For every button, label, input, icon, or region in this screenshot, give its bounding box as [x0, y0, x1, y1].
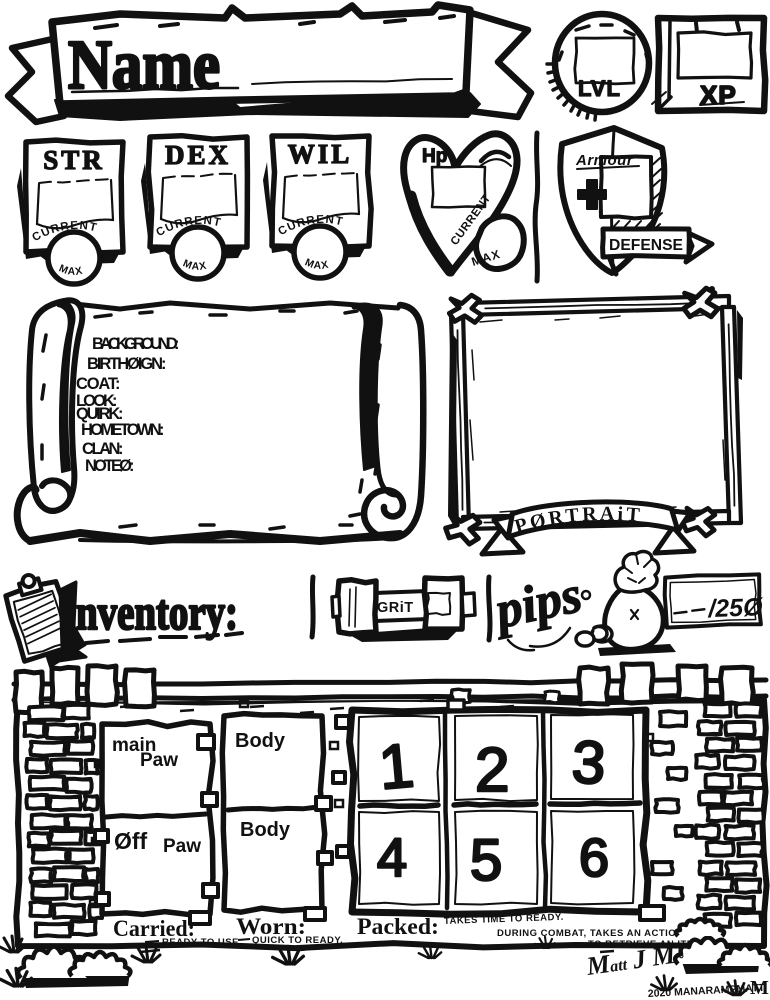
svg-text:HOMETOWN:: HOMETOWN:	[81, 421, 165, 439]
svg-text:4: 4	[377, 828, 407, 888]
svg-text:3: 3	[570, 728, 607, 797]
svg-text:QUICK TO READY.: QUICK TO READY.	[252, 935, 343, 946]
svg-text:DURING COMBAT, TAKES AN ACTION: DURING COMBAT, TAKES AN ACTION	[497, 928, 684, 939]
svg-text:Body: Body	[235, 730, 286, 752]
svg-text:Name: Name	[68, 27, 220, 104]
svg-text:nventory:: nventory:	[76, 584, 238, 640]
svg-text:GRiT: GRiT	[377, 600, 414, 616]
svg-text:XP: XP	[700, 80, 737, 110]
svg-text:STR: STR	[43, 145, 105, 175]
svg-text:/25Ø: /25Ø	[707, 593, 765, 623]
svg-text:Paw: Paw	[163, 836, 201, 857]
svg-text:NOTEØ:: NOTEØ:	[85, 457, 135, 475]
svg-text:WIL: WIL	[288, 139, 353, 169]
svg-text:1: 1	[376, 731, 416, 803]
svg-text:BACKGROUND:: BACKGROUND:	[92, 335, 180, 353]
svg-text:CLAN:: CLAN:	[82, 440, 124, 458]
svg-text:DEFENSE: DEFENSE	[609, 237, 683, 254]
svg-text:DEX: DEX	[165, 140, 231, 170]
svg-text:Paw: Paw	[140, 750, 178, 771]
svg-text:2: 2	[475, 736, 509, 805]
svg-text:LVL: LVL	[578, 76, 621, 101]
svg-text:READY TO USE.: READY TO USE.	[162, 937, 242, 948]
svg-text:M: M	[750, 977, 769, 999]
svg-text:5: 5	[470, 828, 502, 893]
svg-text:Hp: Hp	[422, 146, 447, 167]
svg-text:6: 6	[579, 828, 609, 888]
svg-text:COAT:: COAT:	[76, 375, 121, 393]
svg-text:BIRTHØIGN:: BIRTHØIGN:	[87, 355, 167, 373]
svg-text:Body: Body	[240, 819, 291, 841]
svg-text:Packed:: Packed:	[357, 914, 439, 939]
svg-text:Øff: Øff	[114, 828, 148, 854]
